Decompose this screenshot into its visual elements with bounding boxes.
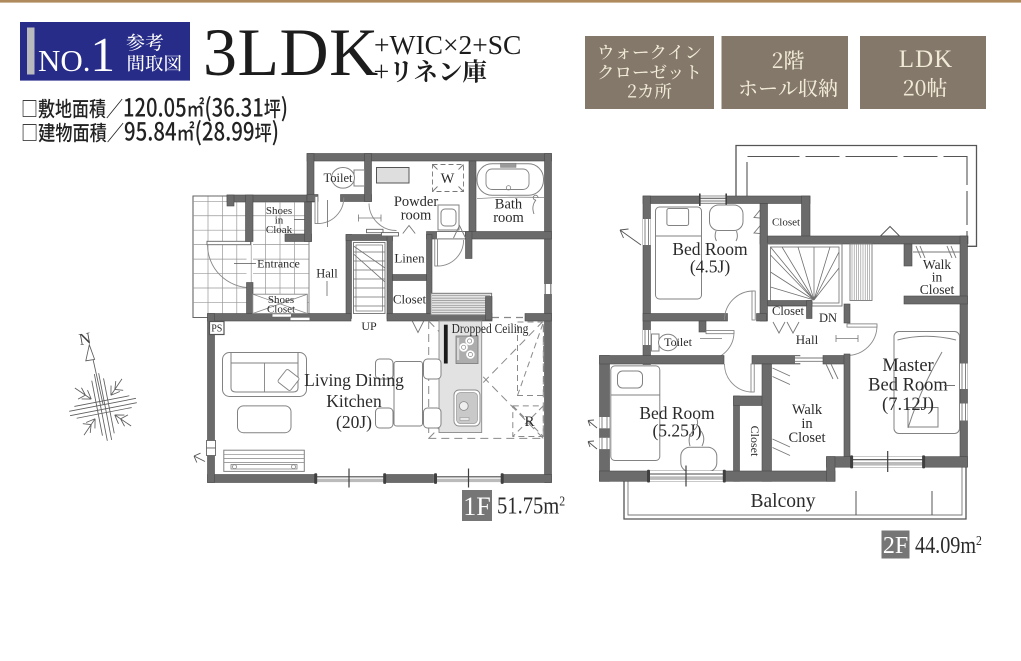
svg-text:Kitchen: Kitchen [326, 391, 382, 411]
svg-text:R: R [524, 414, 534, 430]
svg-text:Closet: Closet [393, 292, 427, 307]
svg-text:Closet: Closet [772, 304, 804, 318]
svg-text:Toilet: Toilet [664, 335, 692, 349]
svg-text:Closet: Closet [267, 303, 295, 315]
svg-text:UP: UP [361, 319, 377, 333]
svg-text:3LDK: 3LDK [203, 14, 379, 90]
svg-text:PS: PS [211, 324, 222, 335]
svg-text:Hall: Hall [316, 267, 338, 281]
svg-text:Closet: Closet [772, 217, 800, 229]
svg-text:Closet: Closet [920, 282, 955, 297]
svg-text:LDK: LDK [899, 46, 953, 73]
svg-text:room: room [493, 210, 524, 226]
svg-text:(5.25J): (5.25J) [652, 421, 701, 441]
svg-text:Dropped Ceiling: Dropped Ceiling [452, 321, 529, 336]
svg-text:Toilet: Toilet [324, 171, 354, 185]
svg-text:Balcony: Balcony [751, 491, 816, 512]
svg-text:Cloak: Cloak [266, 224, 293, 236]
svg-text:Master: Master [882, 356, 933, 376]
svg-text:Bed Room: Bed Room [868, 376, 948, 396]
svg-text:Hall: Hall [796, 332, 819, 347]
svg-text:(7.12J): (7.12J) [882, 395, 934, 415]
svg-text:Closet: Closet [748, 426, 762, 457]
svg-text:W: W [441, 171, 455, 187]
svg-text:Living Dining: Living Dining [304, 370, 404, 390]
svg-text:2F: 2F [883, 533, 908, 559]
svg-text:Linen: Linen [394, 251, 425, 266]
svg-text:(20J): (20J) [336, 412, 372, 432]
svg-text:44.09m2: 44.09m2 [915, 531, 982, 558]
svg-text:room: room [401, 208, 432, 224]
svg-text:1F: 1F [463, 492, 490, 521]
svg-text:51.75m2: 51.75m2 [497, 492, 565, 519]
svg-text:(4.5J): (4.5J) [690, 257, 731, 277]
svg-text:DN: DN [819, 311, 837, 325]
svg-text:Entrance: Entrance [257, 257, 300, 271]
svg-text:+WIC×2+SC: +WIC×2+SC [374, 29, 521, 60]
svg-text:Closet: Closet [788, 430, 825, 446]
